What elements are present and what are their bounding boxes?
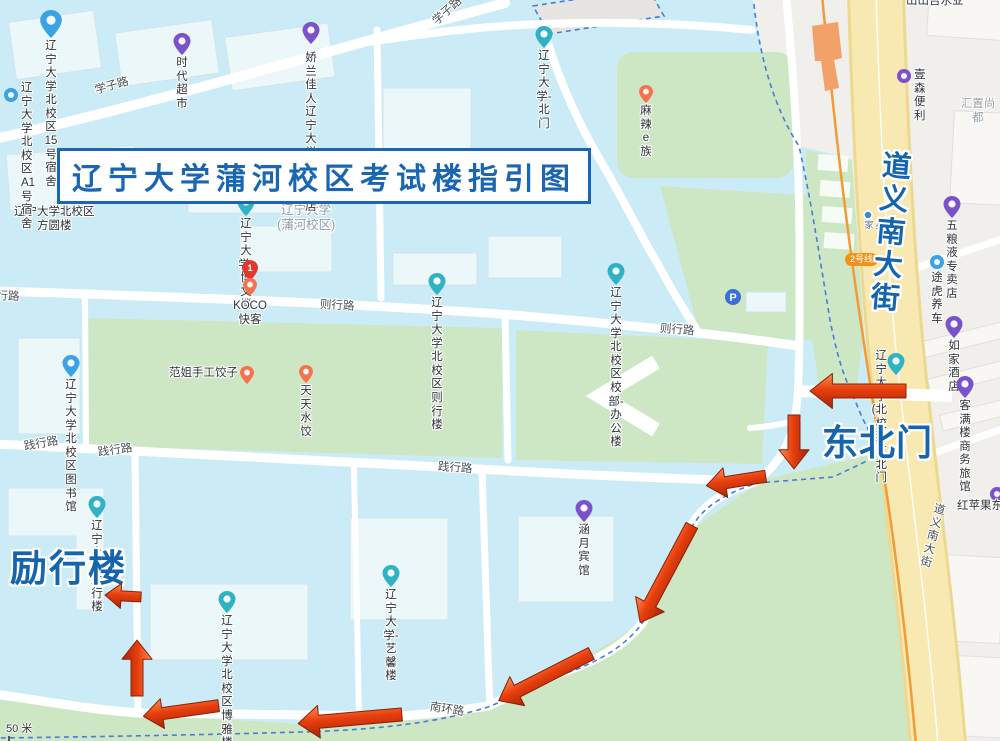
route-arrow-7 [141, 691, 220, 731]
route-arrow-8 [122, 640, 152, 696]
route-arrow-1 [810, 374, 906, 409]
route-arrow-5 [491, 639, 598, 715]
map-viewport[interactable]: 学子路学子路则行路则行路则行路践行路践行路践行路南环路道义南大街山山吉水业汇置尚… [0, 0, 1000, 741]
route-arrow-6 [297, 698, 403, 739]
route-arrows-layer [0, 0, 1000, 741]
route-arrow-4 [626, 518, 706, 630]
route-arrow-2 [779, 415, 809, 469]
route-arrow-3 [704, 461, 768, 500]
route-arrow-9 [104, 583, 141, 610]
